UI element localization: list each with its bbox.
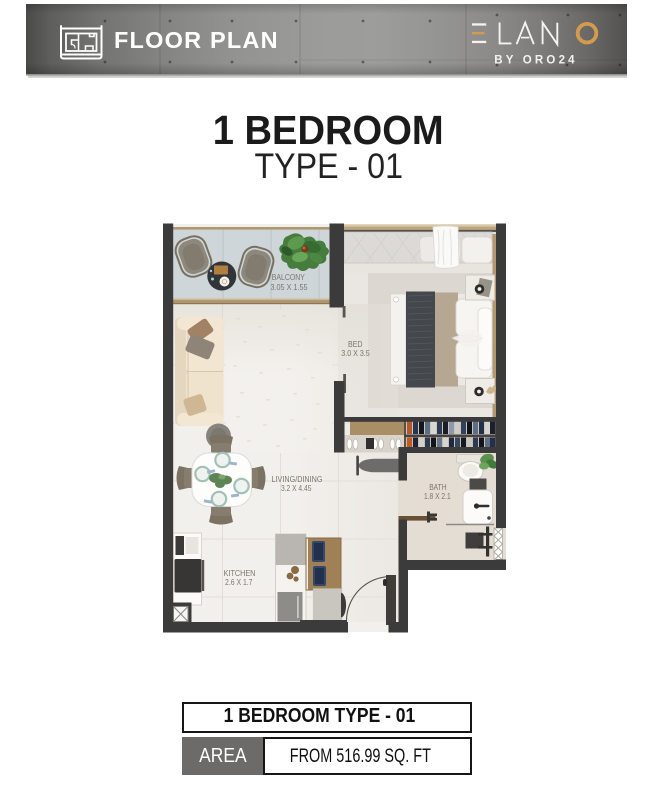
svg-text:2.6 X 1.7: 2.6 X 1.7 — [225, 577, 253, 587]
svg-text:3.2 X 4.45: 3.2 X 4.45 — [281, 483, 312, 493]
svg-text:3.05 X 1.55: 3.05 X 1.55 — [271, 282, 308, 292]
svg-text:BALCONY: BALCONY — [272, 272, 305, 282]
svg-text:1.8 X 2.1: 1.8 X 2.1 — [424, 491, 451, 501]
svg-text:3.0 X 3.5: 3.0 X 3.5 — [341, 348, 370, 358]
